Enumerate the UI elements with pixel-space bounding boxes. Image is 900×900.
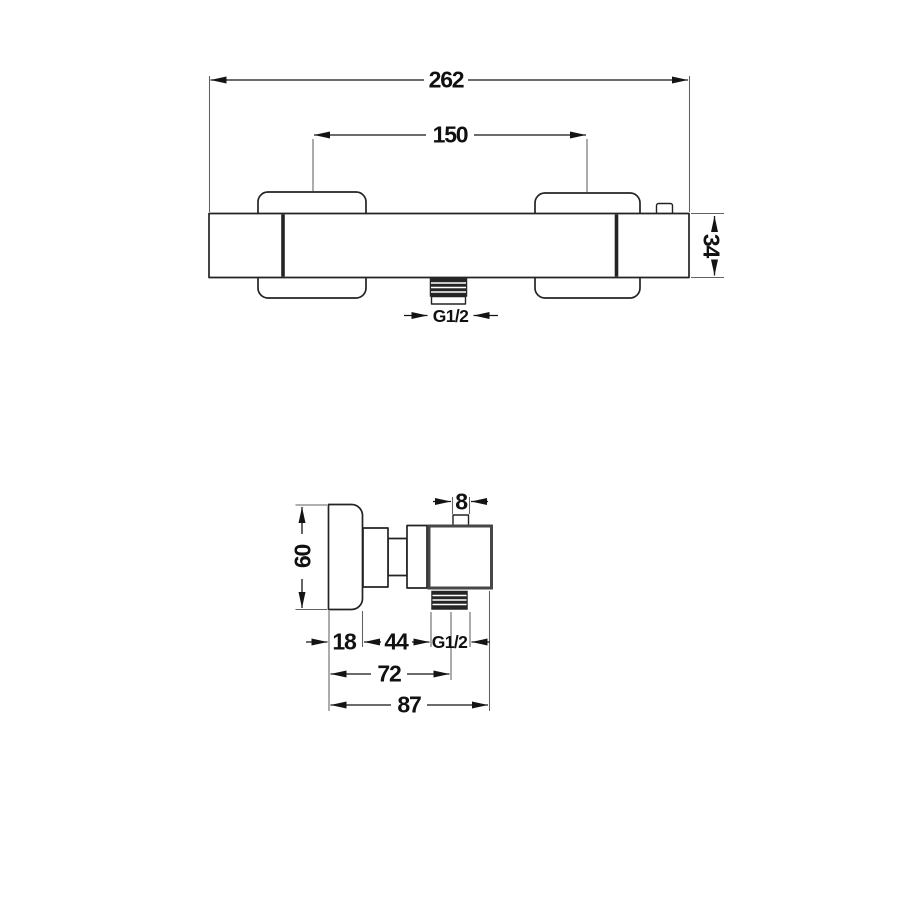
thread-size-label-side: G1/2	[432, 632, 468, 652]
thread-tip	[432, 297, 466, 305]
dim-label-connection-spacing: 150	[433, 122, 468, 148]
dim-label-body-height: 34	[699, 234, 725, 259]
side-view: 60 8 18 44 G1/2 72 87	[290, 489, 492, 718]
outlet-thread-side	[432, 591, 468, 610]
shower-mixer-dimension-drawing: 262 150 34 G1/2	[0, 0, 900, 900]
dim-label-depth-to-center: 72	[377, 661, 401, 687]
dim-label-tab-width: 8	[455, 489, 468, 515]
dim-label-total-depth: 87	[397, 692, 421, 718]
handle-collar	[363, 528, 388, 587]
top-tab	[453, 515, 469, 526]
technical-drawing-page: 262 150 34 G1/2	[0, 0, 900, 900]
dim-label-handle-depth: 18	[332, 629, 357, 655]
front-view: 262 150 34 G1/2	[209, 67, 725, 327]
dim-label-handle-height: 60	[290, 545, 316, 569]
dim-label-overall-width: 262	[429, 67, 464, 93]
dim-label-neck-length: 44	[384, 629, 409, 655]
outlet-thread-front	[430, 278, 467, 304]
wall-flange	[407, 526, 427, 589]
handle-knob-profile	[329, 505, 363, 610]
thread-size-label-front: G1/2	[433, 306, 469, 326]
neck-connector	[388, 539, 407, 576]
valve-body-square	[429, 526, 492, 588]
